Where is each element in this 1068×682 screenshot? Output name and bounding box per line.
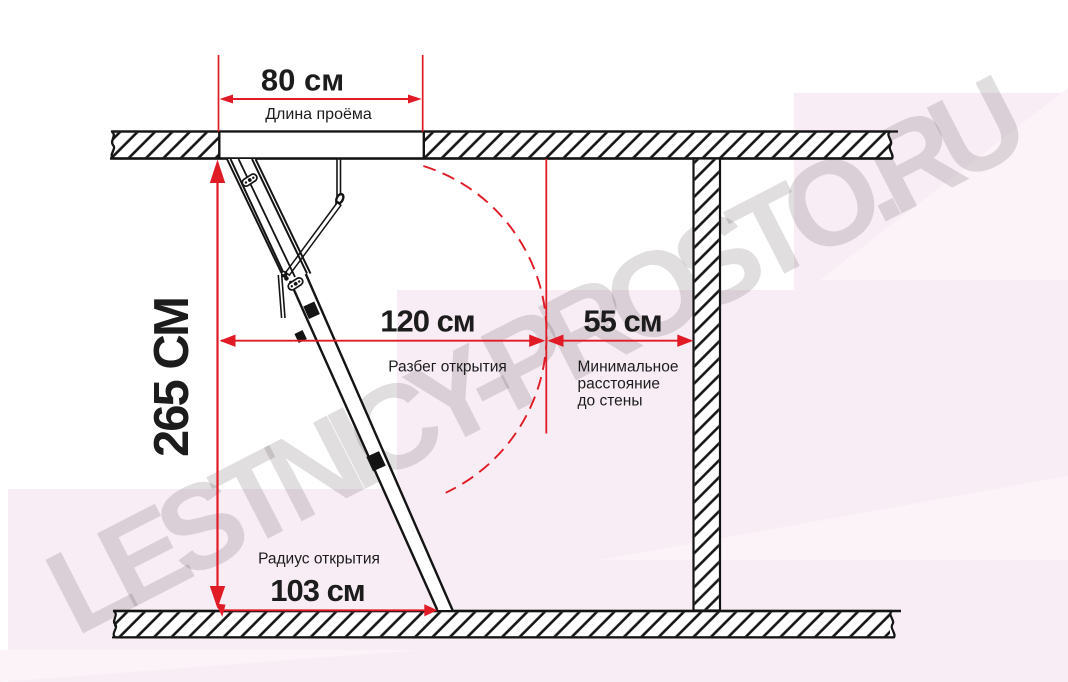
- svg-text:Разбег открытия: Разбег открытия: [388, 359, 507, 376]
- svg-text:265 СМ: 265 СМ: [145, 298, 199, 457]
- svg-text:55 см: 55 см: [583, 304, 661, 339]
- svg-text:103 см: 103 см: [270, 573, 365, 608]
- svg-text:Радиус открытия: Радиус открытия: [258, 551, 380, 568]
- svg-text:расстояние: расстояние: [578, 376, 661, 393]
- svg-text:Минимальное: Минимальное: [578, 359, 679, 376]
- svg-text:80 см: 80 см: [261, 63, 344, 98]
- svg-text:до стены: до стены: [578, 393, 643, 410]
- svg-text:Длина проёма: Длина проёма: [265, 106, 372, 123]
- svg-text:120 см: 120 см: [380, 304, 475, 339]
